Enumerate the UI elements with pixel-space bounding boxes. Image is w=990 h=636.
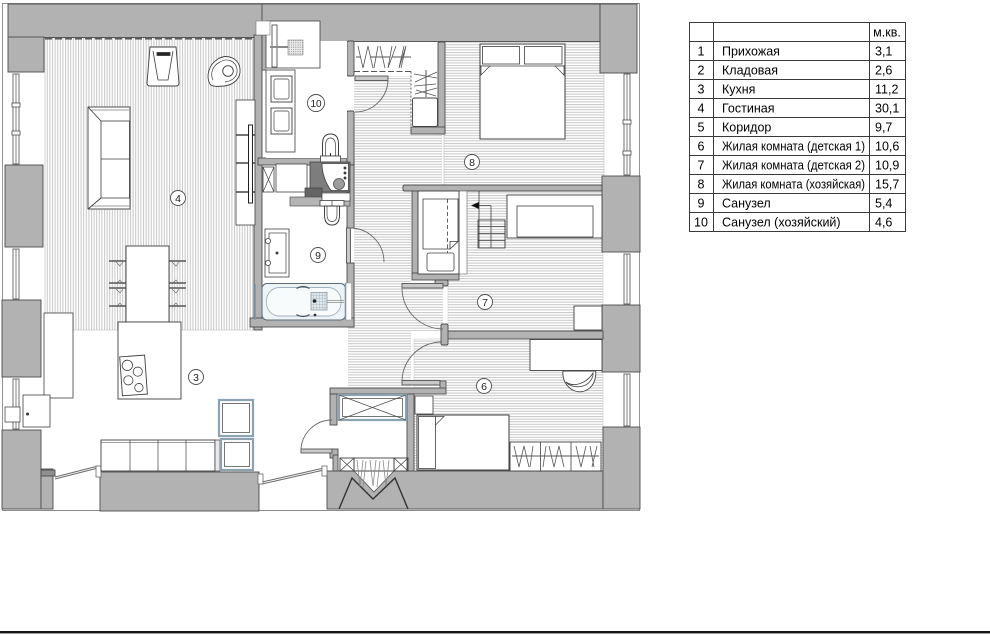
svg-text:Жилая комната (детская 2): Жилая комната (детская 2) (722, 159, 865, 173)
svg-text:Кухня: Кухня (722, 83, 755, 97)
svg-text:1: 1 (698, 45, 705, 59)
svg-text:30,1: 30,1 (875, 102, 899, 116)
svg-text:м.кв.: м.кв. (873, 26, 901, 40)
svg-text:Жилая комната (детская 1): Жилая комната (детская 1) (722, 140, 865, 154)
svg-text:10,9: 10,9 (875, 159, 899, 173)
svg-text:7: 7 (698, 159, 705, 173)
svg-text:3: 3 (698, 83, 705, 97)
svg-text:6: 6 (481, 381, 487, 393)
svg-text:3: 3 (193, 372, 199, 384)
svg-text:Кладовая: Кладовая (722, 64, 778, 78)
svg-text:Жилая комната (хозяйская): Жилая комната (хозяйская) (722, 178, 865, 192)
svg-text:Гостиная: Гостиная (722, 102, 774, 116)
svg-text:5: 5 (698, 121, 705, 135)
svg-text:9: 9 (315, 250, 321, 262)
svg-text:10: 10 (310, 99, 322, 110)
svg-text:Санузел (хозяйский): Санузел (хозяйский) (722, 216, 841, 230)
svg-text:2: 2 (698, 64, 705, 78)
svg-text:10: 10 (694, 216, 708, 230)
svg-text:10,6: 10,6 (875, 140, 899, 154)
svg-text:Коридор: Коридор (722, 121, 771, 135)
svg-text:8: 8 (698, 178, 705, 192)
svg-text:4,6: 4,6 (875, 216, 892, 230)
svg-text:6: 6 (698, 140, 705, 154)
svg-text:11,2: 11,2 (875, 83, 898, 97)
svg-text:Санузел: Санузел (722, 197, 771, 211)
svg-text:Прихожая: Прихожая (722, 45, 780, 59)
svg-text:9,7: 9,7 (875, 121, 892, 135)
svg-text:9: 9 (698, 197, 705, 211)
svg-text:2,6: 2,6 (875, 64, 892, 78)
svg-text:7: 7 (482, 297, 488, 309)
svg-text:4: 4 (698, 102, 705, 116)
svg-text:3,1: 3,1 (875, 45, 892, 59)
svg-text:4: 4 (175, 193, 181, 205)
svg-text:5,4: 5,4 (875, 197, 892, 211)
svg-text:8: 8 (469, 157, 475, 169)
svg-text:15,7: 15,7 (875, 178, 899, 192)
